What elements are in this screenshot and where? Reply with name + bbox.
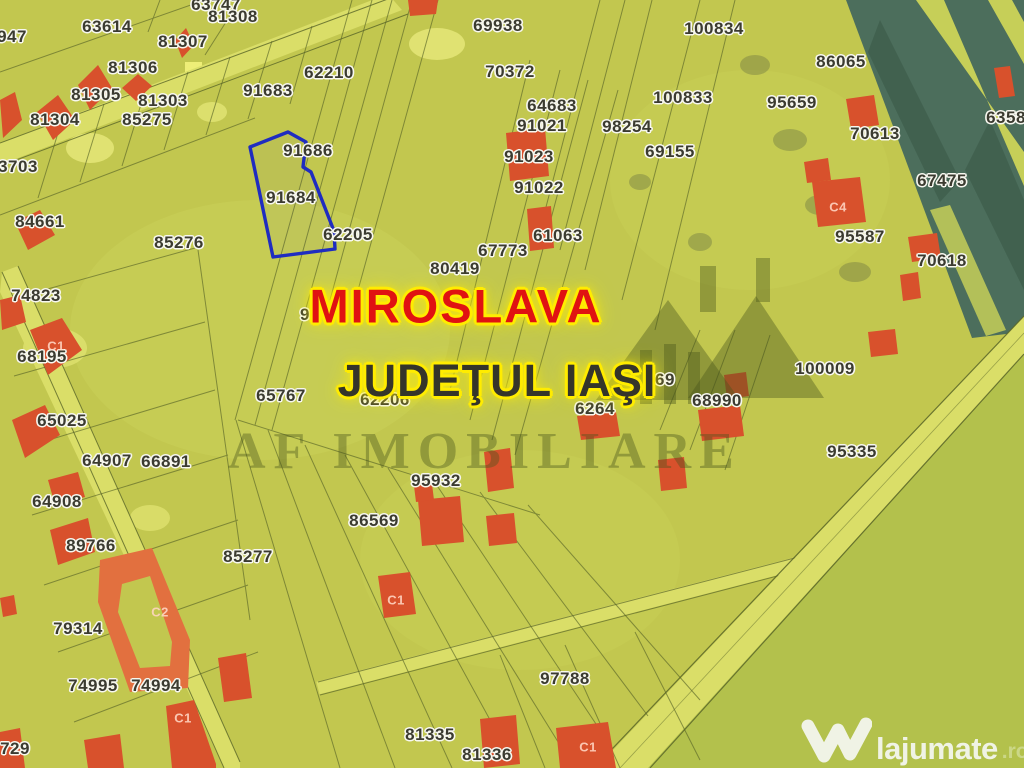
parcel-label-84661: 84661	[15, 212, 65, 232]
parcel-label-89766: 89766	[66, 536, 116, 556]
map-screenshot: 6374781308636149478130769938100834860658…	[0, 0, 1024, 768]
parcel-label-74994: 74994	[131, 676, 181, 696]
parcel-label-64908: 64908	[32, 492, 82, 512]
parcel-label-729: 729	[0, 739, 30, 759]
parcel-label-63614: 63614	[82, 17, 132, 37]
parcel-label-86065: 86065	[816, 52, 866, 72]
lajumate-logo: lajumate.ro	[800, 712, 1024, 764]
parcel-label-81336: 81336	[462, 745, 512, 765]
parcel-label-3703: 3703	[0, 157, 38, 177]
parcel-label-95659: 95659	[767, 93, 817, 113]
parcel-label-65767: 65767	[256, 386, 306, 406]
parcel-label-70372: 70372	[485, 62, 535, 82]
building-label-C1: C1	[387, 593, 405, 608]
parcel-label-81335: 81335	[405, 725, 455, 745]
parcel-label-65025: 65025	[37, 411, 87, 431]
parcel-label-95335: 95335	[827, 442, 877, 462]
parcel-label-74823: 74823	[11, 286, 61, 306]
lajumate-logo-tld: .ro	[1002, 739, 1024, 764]
parcel-label-67475: 67475	[917, 171, 967, 191]
parcel-label-81307: 81307	[158, 32, 208, 52]
parcel-label-62205: 62205	[323, 225, 373, 245]
parcel-label-81304: 81304	[30, 110, 80, 130]
parcel-label-61063: 61063	[533, 226, 583, 246]
parcel-label-64683: 64683	[527, 96, 577, 116]
watermark-city-name: MIROSLAVA	[309, 279, 602, 334]
building-label-C1: C1	[174, 711, 192, 726]
lajumate-logo-text: lajumate	[876, 733, 998, 764]
building-label-C1: C1	[47, 339, 65, 354]
parcel-label-74995: 74995	[68, 676, 118, 696]
parcel-label-85277: 85277	[223, 547, 273, 567]
lajumate-heart-icon	[800, 712, 872, 764]
parcel-label-70618: 70618	[917, 251, 967, 271]
parcel-label-91684: 91684	[266, 188, 316, 208]
parcel-label-81308: 81308	[208, 7, 258, 27]
parcel-label-67773: 67773	[478, 241, 528, 261]
parcel-label-100833: 100833	[653, 88, 713, 108]
parcel-label-91022: 91022	[514, 178, 564, 198]
parcel-label-85275: 85275	[122, 110, 172, 130]
building-label-C2: C2	[151, 605, 169, 620]
parcel-label-97788: 97788	[540, 669, 590, 689]
parcel-label-100009: 100009	[795, 359, 855, 379]
parcel-label-85276: 85276	[154, 233, 204, 253]
building-label-C4: C4	[829, 200, 847, 215]
parcel-label-91686: 91686	[283, 141, 333, 161]
building-label-C1: C1	[579, 740, 597, 755]
parcel-label-98254: 98254	[602, 117, 652, 137]
parcel-label-947: 947	[0, 27, 27, 47]
parcel-label-81306: 81306	[108, 58, 158, 78]
brand-watermark-text: AF IMOBILIARE	[228, 422, 742, 481]
parcel-label-70613: 70613	[850, 124, 900, 144]
parcel-label-79314: 79314	[53, 619, 103, 639]
parcel-label-68990: 68990	[692, 391, 742, 411]
parcel-label-69: 69	[655, 370, 675, 390]
parcel-label-64907: 64907	[82, 451, 132, 471]
parcel-label-80419: 80419	[430, 259, 480, 279]
parcel-label-91683: 91683	[243, 81, 293, 101]
watermark-county-name: JUDEŢUL IAŞI	[338, 355, 657, 407]
parcel-label-62210: 62210	[304, 63, 354, 83]
parcel-label-81305: 81305	[71, 85, 121, 105]
parcel-label-91023: 91023	[504, 147, 554, 167]
parcel-label-66891: 66891	[141, 452, 191, 472]
parcel-label-69155: 69155	[645, 142, 695, 162]
parcel-label-95587: 95587	[835, 227, 885, 247]
parcel-label-86569: 86569	[349, 511, 399, 531]
parcel-label-91021: 91021	[517, 116, 567, 136]
parcel-label-100834: 100834	[684, 19, 744, 39]
parcel-label-69938: 69938	[473, 16, 523, 36]
parcel-label-81303: 81303	[138, 91, 188, 111]
parcel-label-6358: 6358	[986, 108, 1024, 128]
